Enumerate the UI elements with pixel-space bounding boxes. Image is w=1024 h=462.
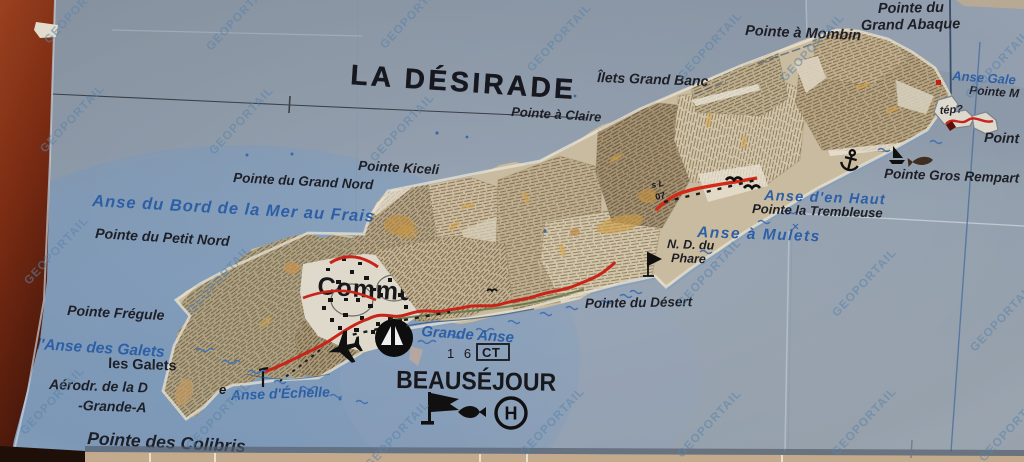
svg-text:Phare: Phare (671, 251, 706, 266)
svg-text:Point: Point (984, 129, 1021, 146)
svg-text:e: e (219, 382, 226, 397)
svg-text:07: 07 (654, 190, 666, 202)
svg-text:H: H (505, 404, 518, 424)
svg-text:Pointe du: Pointe du (878, 0, 944, 17)
svg-text:Grand Abaque: Grand Abaque (861, 16, 961, 34)
svg-text:1 6: 1 6 (447, 346, 474, 361)
svg-text:-Grande-A: -Grande-A (78, 397, 147, 415)
svg-text:tép?: tép? (939, 103, 963, 117)
svg-text:CT: CT (482, 345, 500, 360)
svg-text:s L: s L (651, 178, 665, 190)
svg-text:BEAUSÉJOUR: BEAUSÉJOUR (396, 365, 556, 397)
